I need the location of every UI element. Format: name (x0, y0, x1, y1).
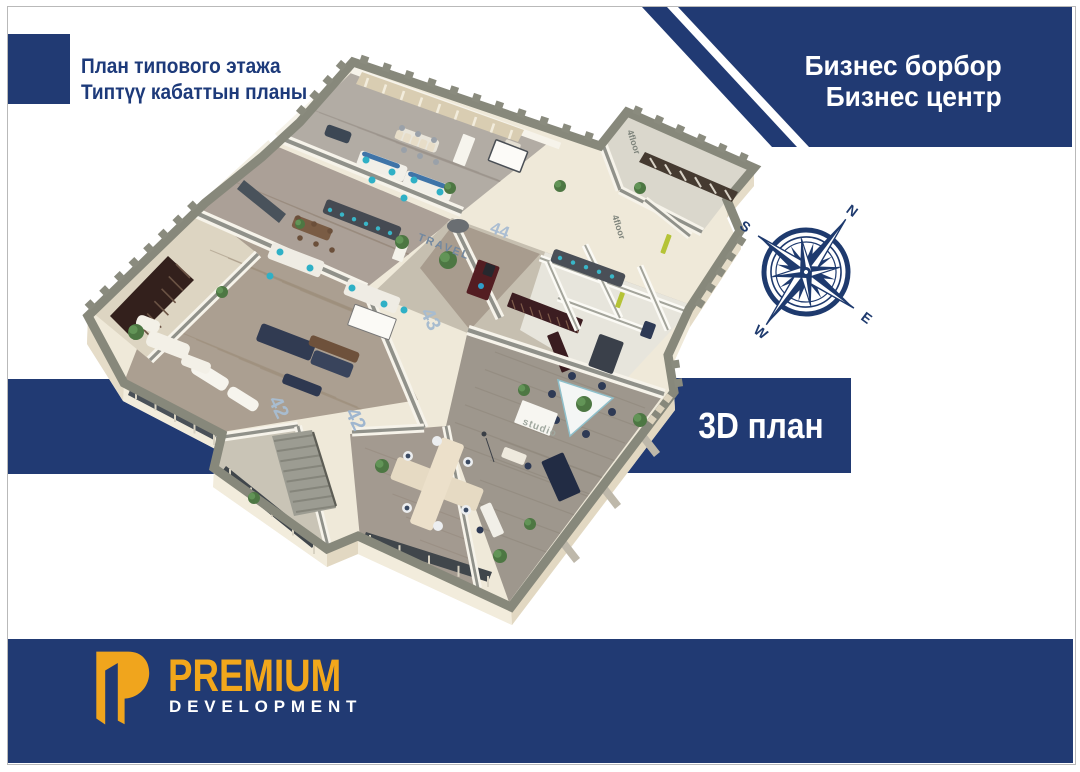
svg-text:E: E (858, 309, 875, 327)
svg-text:W: W (751, 322, 772, 343)
svg-text:N: N (843, 201, 861, 220)
